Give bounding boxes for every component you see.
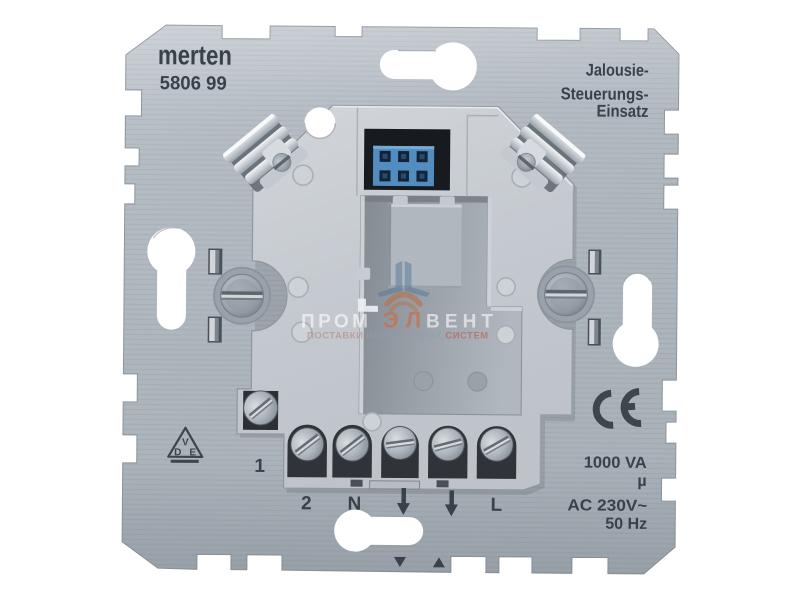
svg-text:Einsatz: Einsatz [596, 102, 648, 121]
svg-text:5806 99: 5806 99 [160, 73, 227, 95]
svg-text:merten: merten [158, 40, 232, 71]
svg-text:µ: µ [637, 473, 646, 490]
svg-text:E: E [189, 447, 196, 458]
svg-text:AC 230V~: AC 230V~ [567, 497, 647, 515]
svg-text:N: N [347, 494, 361, 515]
svg-text:1: 1 [254, 456, 265, 477]
svg-text:Jalousie-: Jalousie- [586, 60, 649, 79]
svg-text:1000 VA: 1000 VA [584, 454, 648, 471]
svg-text:2: 2 [301, 493, 312, 514]
svg-text:V: V [182, 437, 189, 448]
svg-text:ПРОМ: ПРОМ [301, 312, 368, 333]
svg-text:50 Hz: 50 Hz [605, 516, 647, 533]
svg-text:D: D [174, 447, 181, 458]
svg-text:L: L [491, 495, 503, 516]
svg-text:ПОСТАВКИ ИНЖЕНЕРНЫХ СИСТЕМ: ПОСТАВКИ ИНЖЕНЕРНЫХ СИСТЕМ [307, 331, 489, 342]
